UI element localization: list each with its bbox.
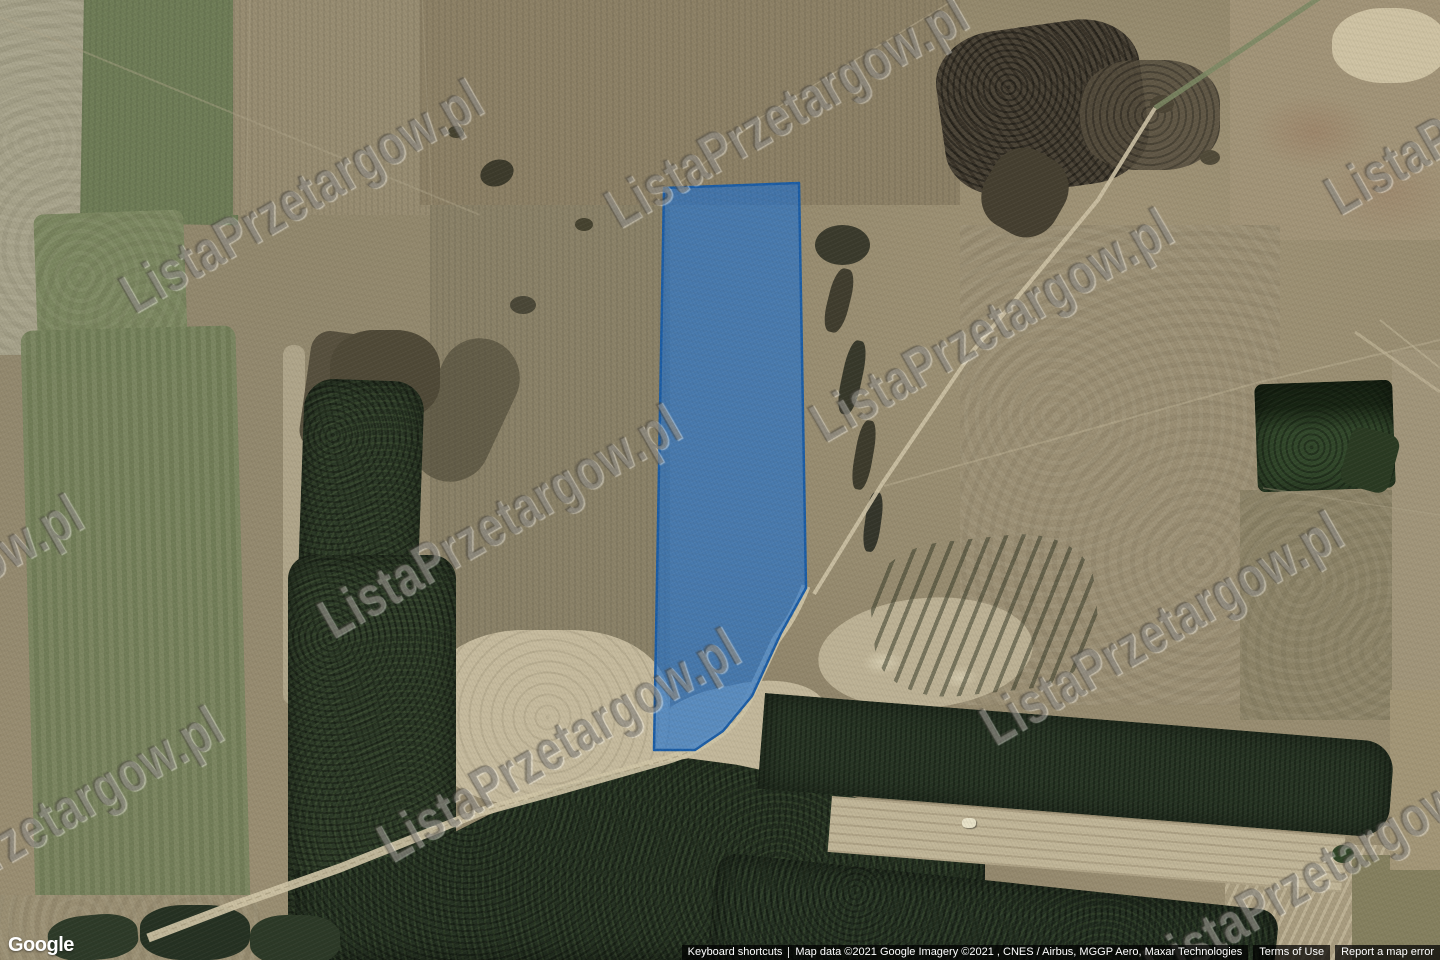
google-logo[interactable]: Google (8, 934, 74, 957)
parcel-highlight-polygon[interactable] (654, 183, 806, 750)
report-map-error-link[interactable]: Report a map error (1341, 945, 1434, 960)
attribution-main-box: Keyboard shortcuts Map data ©2021 Google… (682, 945, 1249, 960)
map-attribution-bar: Keyboard shortcuts Map data ©2021 Google… (682, 945, 1440, 960)
map-canvas[interactable]: ListaPrzetargow.pl ListaPrzetargow.pl Li… (0, 0, 1440, 960)
keyboard-shortcuts-button[interactable]: Keyboard shortcuts (688, 945, 789, 960)
terms-of-use-box: Terms of Use (1253, 945, 1330, 960)
parcel-highlight (0, 0, 1440, 960)
map-data-attribution: Map data ©2021 Google Imagery ©2021 , CN… (789, 945, 1242, 960)
report-error-box: Report a map error (1335, 945, 1440, 960)
terms-of-use-link[interactable]: Terms of Use (1259, 945, 1324, 960)
